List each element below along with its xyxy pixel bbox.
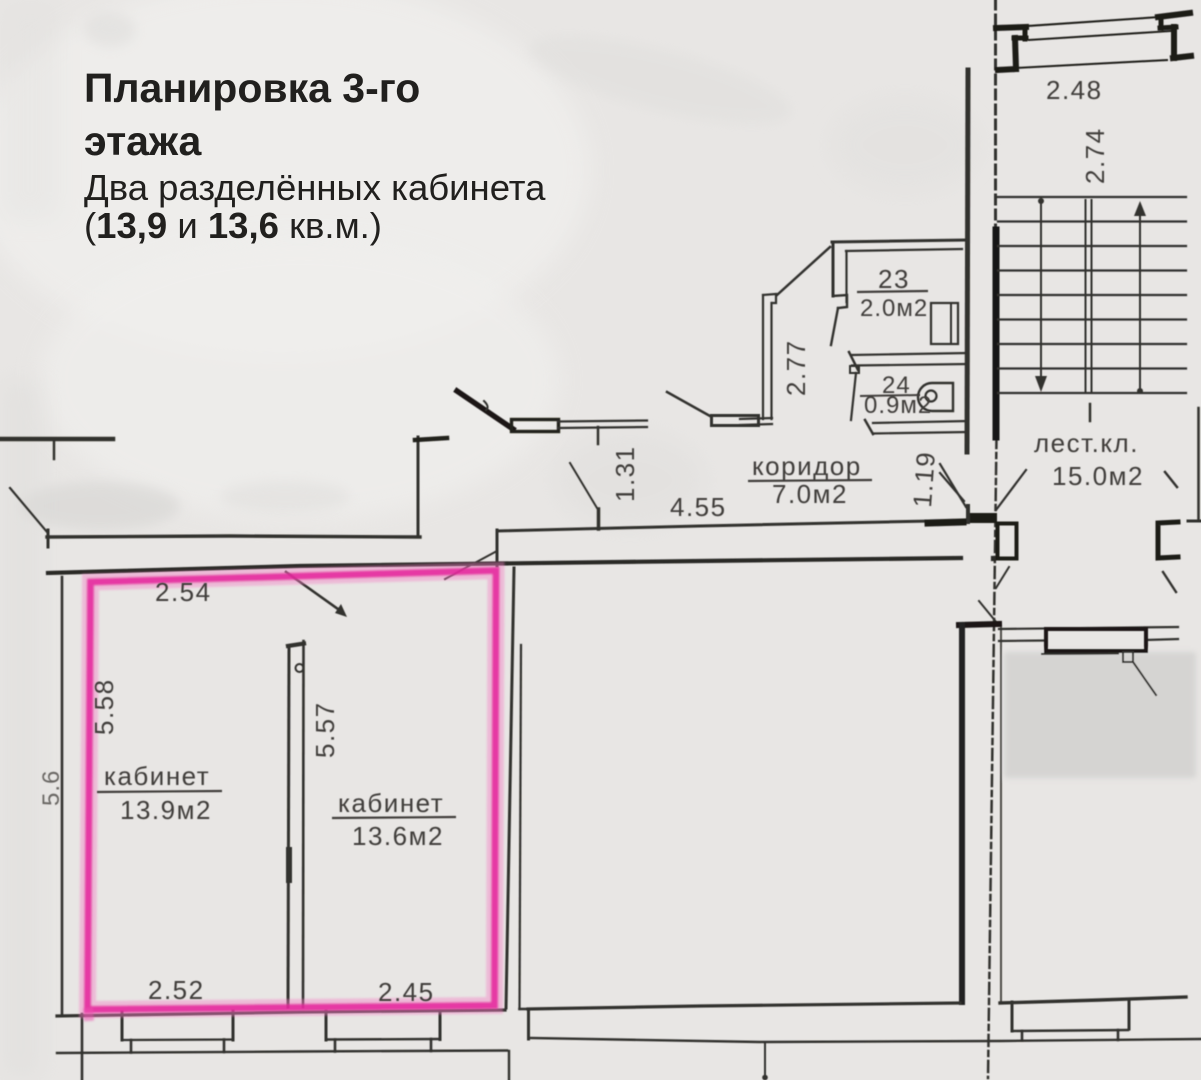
svg-text:23: 23 <box>878 264 910 294</box>
svg-text:этажа: этажа <box>84 118 203 164</box>
svg-text:2.52: 2.52 <box>148 975 205 1005</box>
svg-text:5.57: 5.57 <box>310 701 340 758</box>
svg-text:0.9м2: 0.9м2 <box>864 392 932 419</box>
svg-text:2.54: 2.54 <box>155 577 212 607</box>
svg-text:13.9м2: 13.9м2 <box>120 795 212 825</box>
svg-text:Планировка 3-го: Планировка 3-го <box>84 65 420 111</box>
svg-text:Два разделённых кабинета: Два разделённых кабинета <box>84 167 546 208</box>
svg-text:2.77: 2.77 <box>781 339 811 396</box>
svg-text:2.0м2: 2.0м2 <box>860 295 928 322</box>
svg-text:2.45: 2.45 <box>378 977 435 1007</box>
svg-text:лест.кл.: лест.кл. <box>1034 428 1139 458</box>
svg-text:13.6м2: 13.6м2 <box>352 821 444 851</box>
svg-text:4.55: 4.55 <box>670 492 727 522</box>
svg-text:7.0м2: 7.0м2 <box>772 479 848 509</box>
svg-text:1.31: 1.31 <box>610 445 640 502</box>
svg-text:5.6: 5.6 <box>38 770 65 806</box>
svg-text:коридор: коридор <box>752 451 862 481</box>
svg-text:кабинет: кабинет <box>104 761 210 791</box>
svg-text:15.0м2: 15.0м2 <box>1052 461 1144 491</box>
svg-text:кабинет: кабинет <box>338 788 444 818</box>
svg-text:2.48: 2.48 <box>1046 75 1103 105</box>
svg-text:5.58: 5.58 <box>89 678 119 735</box>
svg-text:(13,9 и 13,6 кв.м.): (13,9 и 13,6 кв.м.) <box>84 205 382 246</box>
svg-text:2.74: 2.74 <box>1080 127 1110 184</box>
svg-text:1.19: 1.19 <box>907 450 941 509</box>
